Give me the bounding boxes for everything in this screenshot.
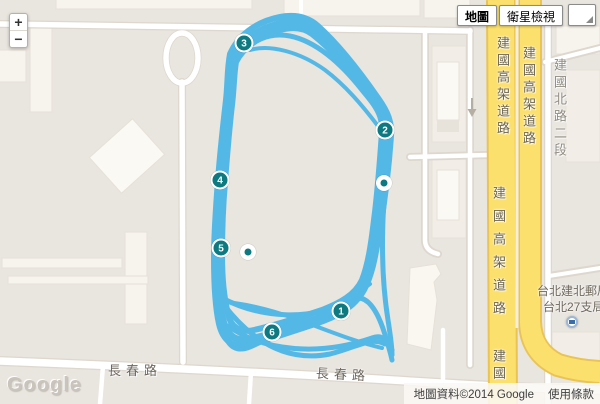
road-label-jianguo-north-rd: 建國北路二段 — [553, 58, 566, 160]
poi-label-post-office-line1: 台北建北郵局 — [537, 284, 600, 299]
route-marker-4[interactable]: 4 — [210, 170, 230, 190]
position-dot-marker[interactable] — [240, 244, 257, 261]
svg-text:5: 5 — [218, 244, 224, 255]
map-type-button-map[interactable]: 地圖 — [457, 5, 497, 26]
route-marker-5[interactable]: 5 — [211, 238, 231, 258]
zoom-control: + − — [9, 13, 28, 48]
poi-label-post-office-line2: 台北27支局 — [543, 300, 600, 315]
svg-text:1: 1 — [338, 307, 344, 318]
position-dot-marker[interactable] — [376, 175, 393, 192]
svg-text:3: 3 — [241, 39, 247, 50]
svg-text:2: 2 — [382, 126, 388, 137]
road-label-jianguo-elevated-3: 建國高架道路 — [492, 186, 505, 324]
map-data-copyright: 地圖資料©2014 Google — [414, 386, 534, 402]
map-canvas[interactable]: 123456 — [0, 0, 600, 404]
svg-text:6: 6 — [269, 328, 275, 339]
overview-map-toggle[interactable] — [568, 4, 596, 26]
route-marker-6[interactable]: 6 — [262, 322, 282, 342]
terms-of-use-link[interactable]: 使用條款 — [548, 386, 594, 402]
google-map-view: 123456 建國高架道路 建國高架道路 建國北路二段 建國高架道路 建國 長春… — [0, 0, 600, 404]
route-marker-2[interactable]: 2 — [375, 120, 395, 140]
road-label-changchun-2: 長春路 — [316, 363, 371, 385]
google-logo[interactable]: Google — [7, 374, 82, 397]
map-type-button-satellite[interactable]: 衛星檢視 — [499, 5, 563, 26]
zoom-out-button[interactable]: − — [10, 31, 27, 47]
map-type-control: 地圖 衛星檢視 — [457, 5, 563, 26]
attribution-bar: 地圖資料©2014 Google 使用條款 — [404, 383, 600, 404]
svg-text:4: 4 — [217, 176, 223, 187]
route-marker-3[interactable]: 3 — [234, 33, 254, 53]
road-label-jianguo-elevated-2: 建國高架道路 — [522, 46, 535, 148]
zoom-in-button[interactable]: + — [10, 14, 27, 31]
road-label-jianguo-elevated-1: 建國高架道路 — [496, 36, 509, 138]
post-office-icon[interactable] — [566, 316, 578, 328]
road-label-changchun-1: 長春路 — [108, 360, 162, 379]
route-marker-1[interactable]: 1 — [331, 301, 351, 321]
road-label-jianguo-elevated-4: 建國 — [492, 349, 505, 383]
